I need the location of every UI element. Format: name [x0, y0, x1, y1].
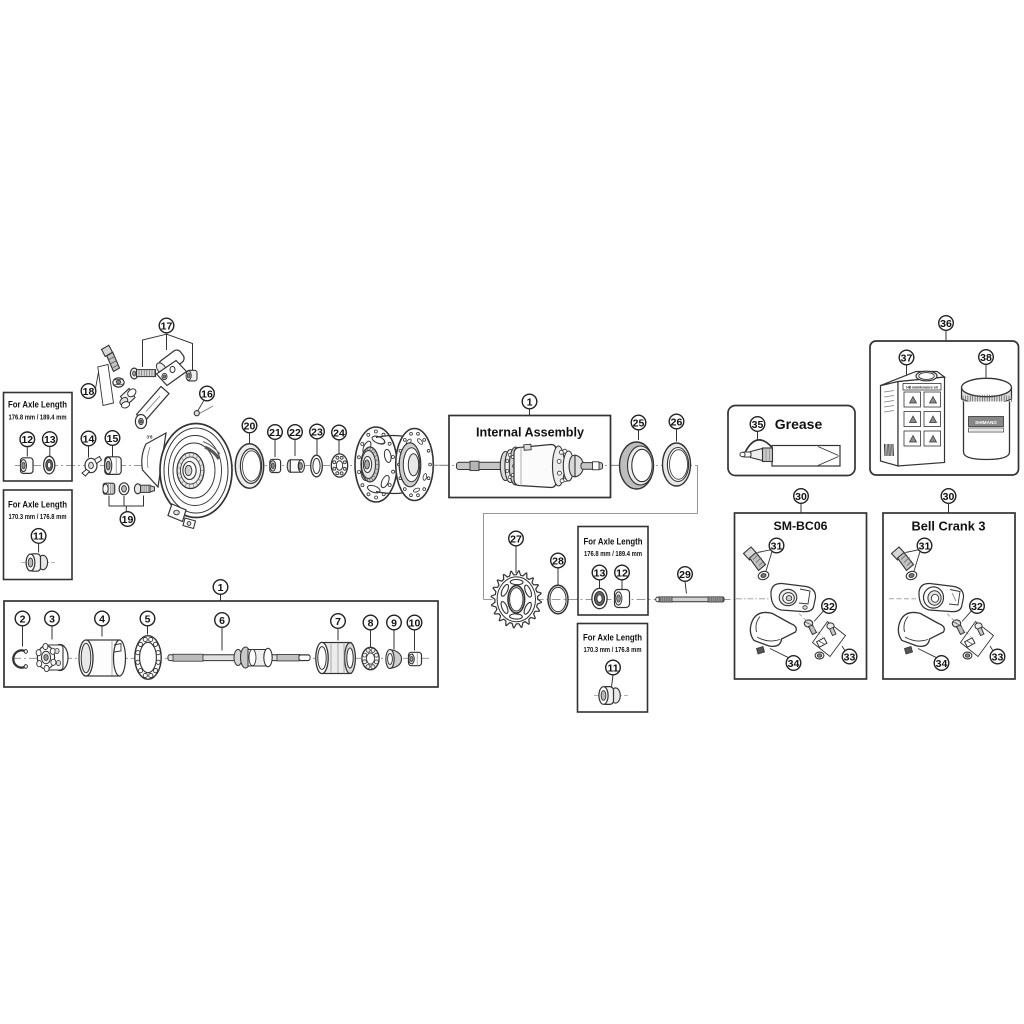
svg-text:31: 31: [771, 540, 783, 552]
svg-text:25: 25: [633, 417, 645, 429]
svg-text:13: 13: [594, 567, 606, 579]
svg-text:5: 5: [145, 613, 151, 625]
svg-text:11: 11: [33, 531, 44, 543]
svg-text:SHIMANO: SHIMANO: [975, 420, 997, 425]
svg-text:SM-BC06: SM-BC06: [774, 519, 828, 533]
svg-text:14: 14: [83, 433, 95, 445]
svg-text:4: 4: [99, 613, 105, 625]
svg-text:9: 9: [391, 617, 397, 629]
svg-text:18: 18: [83, 386, 95, 398]
svg-text:Grease: Grease: [775, 416, 823, 432]
svg-text:10: 10: [409, 617, 421, 629]
svg-text:16: 16: [201, 388, 213, 400]
svg-text:33: 33: [844, 651, 856, 663]
svg-text:32: 32: [971, 601, 983, 613]
svg-text:17: 17: [161, 320, 173, 332]
svg-text:34: 34: [788, 658, 800, 670]
svg-text:28: 28: [552, 555, 564, 567]
svg-text:21: 21: [269, 427, 281, 439]
svg-text:19: 19: [122, 514, 134, 526]
svg-text:3: 3: [49, 613, 55, 625]
svg-text:Internal Assembly: Internal Assembly: [476, 425, 585, 440]
svg-text:32: 32: [823, 601, 835, 613]
svg-text:29: 29: [679, 569, 691, 581]
svg-text:24: 24: [333, 427, 345, 439]
svg-text:176.8 mm / 189.4 mm: 176.8 mm / 189.4 mm: [584, 551, 642, 558]
svg-text:12: 12: [21, 434, 33, 446]
svg-text:12: 12: [616, 567, 628, 579]
svg-text:176.8 mm / 189.4 mm: 176.8 mm / 189.4 mm: [9, 415, 67, 422]
svg-text:13: 13: [44, 434, 56, 446]
svg-text:170.3 mm / 176.8 mm: 170.3 mm / 176.8 mm: [584, 647, 642, 654]
svg-text:38: 38: [980, 352, 992, 364]
svg-text:22: 22: [289, 427, 301, 439]
svg-text:36: 36: [940, 318, 952, 330]
svg-text:For Axle Length: For Axle Length: [8, 500, 67, 510]
svg-text:1: 1: [527, 396, 533, 408]
svg-text:For Axle Length: For Axle Length: [583, 633, 642, 643]
svg-text:Bell Crank 3: Bell Crank 3: [912, 519, 986, 534]
svg-text:3′8: 3′8: [146, 435, 153, 440]
svg-text:6: 6: [219, 615, 225, 627]
svg-text:30: 30: [943, 491, 955, 503]
svg-text:7: 7: [335, 616, 341, 628]
svg-text:37: 37: [901, 352, 913, 364]
svg-text:11: 11: [607, 662, 618, 674]
svg-text:8: 8: [368, 617, 374, 629]
svg-text:35: 35: [752, 419, 764, 431]
svg-text:26: 26: [671, 416, 683, 428]
svg-text:20: 20: [244, 420, 256, 432]
svg-text:27: 27: [510, 533, 522, 545]
svg-text:23: 23: [311, 426, 323, 438]
svg-text:33: 33: [992, 651, 1004, 663]
svg-text:15: 15: [107, 433, 119, 445]
svg-text:30: 30: [795, 491, 807, 503]
svg-text:170.3 mm / 176.8 mm: 170.3 mm / 176.8 mm: [9, 514, 67, 521]
svg-text:34: 34: [936, 658, 948, 670]
svg-text:HB maintenance oil: HB maintenance oil: [906, 386, 938, 390]
svg-text:1: 1: [218, 582, 224, 594]
svg-text:For Axle Length: For Axle Length: [8, 400, 67, 410]
svg-text:For Axle Length: For Axle Length: [584, 537, 643, 547]
svg-text:2: 2: [20, 613, 26, 625]
svg-text:31: 31: [919, 540, 931, 552]
